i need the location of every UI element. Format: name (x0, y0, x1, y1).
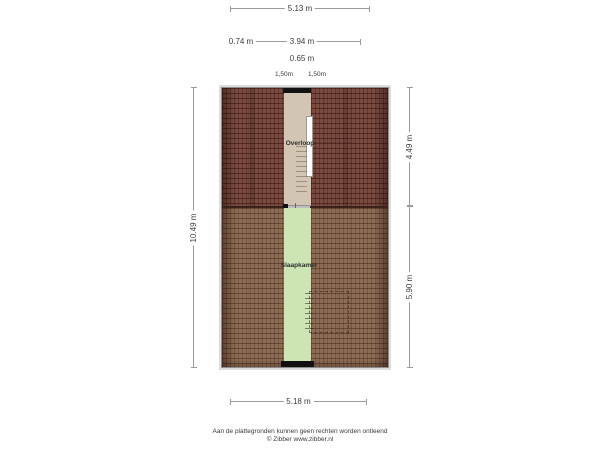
dim-left-height: 10.49 m (188, 87, 199, 368)
roof-section-lower-right (311, 208, 388, 367)
window-bottom (281, 361, 314, 367)
dim-bottom-total-label: 5.18 m (283, 398, 313, 406)
dim-tick (407, 206, 413, 207)
dim-seg-left-label: 0.74 m (226, 38, 256, 46)
dormer-tick-marks (305, 293, 313, 331)
dim-right-lower-label: 5.90 m (406, 272, 414, 302)
dim-tick (360, 39, 361, 45)
roof-edge-shadow (375, 208, 388, 367)
roof-section-upper-left (222, 88, 284, 206)
dim-right-upper-label: 4.49 m (406, 131, 414, 161)
dim-tick (191, 87, 197, 88)
dim-tick (407, 87, 413, 88)
floor-plan-canvas: 5.13 m 0.74 m 3.94 m 0.65 m 1,50m 1,50m … (0, 0, 600, 450)
room-label-hallway: Overloop (286, 141, 315, 148)
dim-tick (230, 399, 231, 405)
dim-seg-right-label: 3.94 m (287, 38, 317, 46)
roof-knee-band (250, 88, 255, 206)
window-top (283, 88, 311, 93)
dim-top-total: 5.13 m (230, 3, 370, 15)
dim-tick (230, 6, 231, 12)
floor-plan: Overloop Slaapkamer (221, 87, 389, 368)
roof-edge-shadow (222, 359, 284, 367)
dim-knee-right-label: 1,50m (308, 72, 326, 79)
dim-knee-left-label: 1,50m (275, 72, 293, 79)
dim-tick (366, 399, 367, 405)
dim-top-segments: 0.74 m 3.94 m (228, 36, 361, 48)
bedroom-floor-strip (284, 208, 311, 367)
disclaimer-text: Aan de plattegronden kunnen geen rechten… (0, 428, 600, 436)
dim-top-total-label: 5.13 m (285, 5, 315, 13)
dim-right-lower: 5.90 m (404, 206, 415, 368)
dashed-outline-dormer (309, 291, 349, 333)
dashed-outline-stairs (314, 142, 356, 194)
dim-seg-center-label: 0.65 m (290, 55, 314, 63)
room-label-bedroom: Slaapkamer (281, 263, 318, 270)
roof-edge-shadow (311, 359, 388, 367)
dim-bottom-total: 5.18 m (230, 396, 367, 408)
roof-edge-shadow (222, 208, 235, 367)
dim-left-height-label: 10.49 m (190, 210, 198, 245)
dim-tick (369, 6, 370, 12)
roof-section-lower-left (222, 208, 284, 367)
stair-treads-dashed (296, 146, 307, 192)
dim-tick (407, 367, 413, 368)
dim-tick (191, 367, 197, 368)
roof-edge-shadow (222, 88, 235, 206)
dim-right-upper: 4.49 m (404, 87, 415, 206)
roof-edge-shadow (375, 88, 388, 206)
credit-text: © Zibber www.zibber.nl (0, 436, 600, 444)
